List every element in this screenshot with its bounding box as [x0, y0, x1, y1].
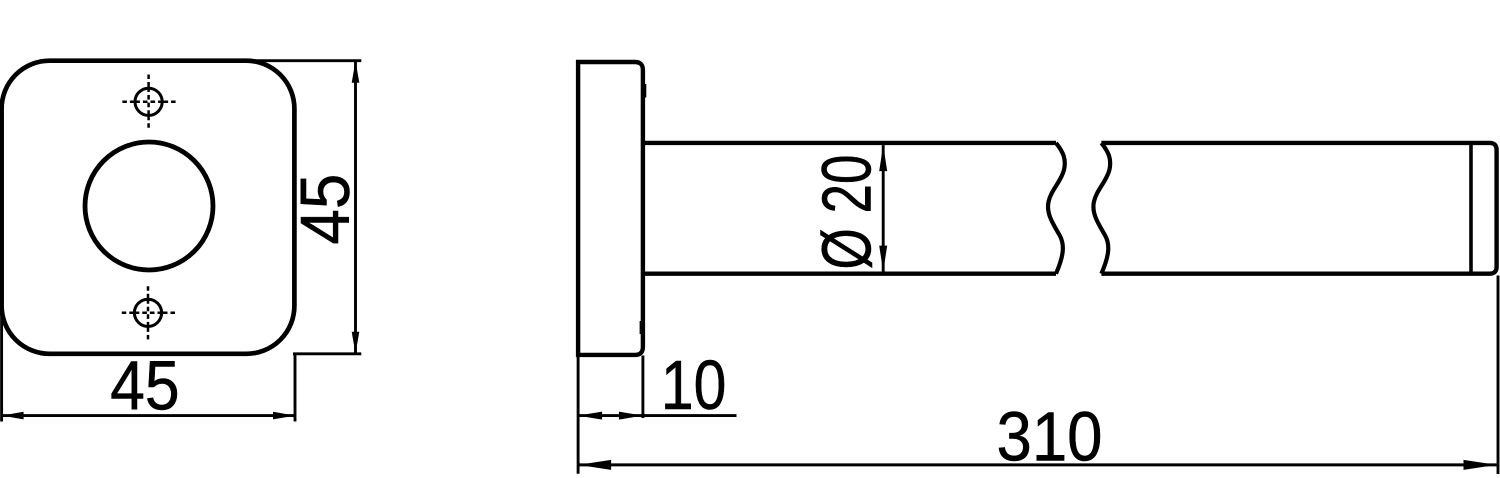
svg-text:45: 45	[286, 174, 364, 245]
svg-text:310: 310	[997, 398, 1103, 476]
svg-text:Ø 20: Ø 20	[807, 155, 885, 270]
svg-text:45: 45	[110, 347, 180, 425]
svg-text:10: 10	[661, 346, 727, 424]
